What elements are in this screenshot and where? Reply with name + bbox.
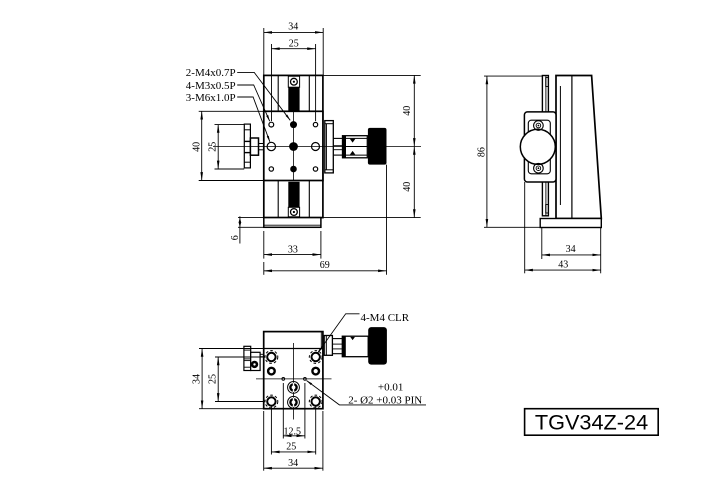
svg-text:4-M3x0.5P: 4-M3x0.5P <box>186 80 236 92</box>
svg-text:34: 34 <box>288 22 298 33</box>
svg-text:4-M4 CLR: 4-M4 CLR <box>361 312 410 324</box>
svg-text:2-M4x0.7P: 2-M4x0.7P <box>186 67 236 79</box>
svg-text:25: 25 <box>286 442 296 453</box>
svg-text:3-M6x1.0P: 3-M6x1.0P <box>186 92 236 104</box>
svg-text:+0.01: +0.01 <box>378 382 403 394</box>
svg-text:43: 43 <box>558 259 568 270</box>
svg-text:86: 86 <box>476 147 487 157</box>
svg-text:TGV34Z-24: TGV34Z-24 <box>535 409 648 434</box>
svg-text:25: 25 <box>208 142 219 152</box>
svg-text:25: 25 <box>289 38 299 49</box>
svg-text:40: 40 <box>402 106 413 116</box>
svg-text:40: 40 <box>402 182 413 192</box>
svg-text:34: 34 <box>192 374 203 384</box>
svg-text:12.5: 12.5 <box>284 426 302 437</box>
svg-text:25: 25 <box>208 374 219 384</box>
svg-text:69: 69 <box>320 260 330 271</box>
svg-text:6: 6 <box>230 235 241 240</box>
svg-text:2- Ø2 +0.03 PIN: 2- Ø2 +0.03 PIN <box>348 395 422 407</box>
svg-text:40: 40 <box>192 142 203 152</box>
svg-text:33: 33 <box>288 244 298 255</box>
svg-text:34: 34 <box>566 244 576 255</box>
svg-text:34: 34 <box>288 458 298 469</box>
